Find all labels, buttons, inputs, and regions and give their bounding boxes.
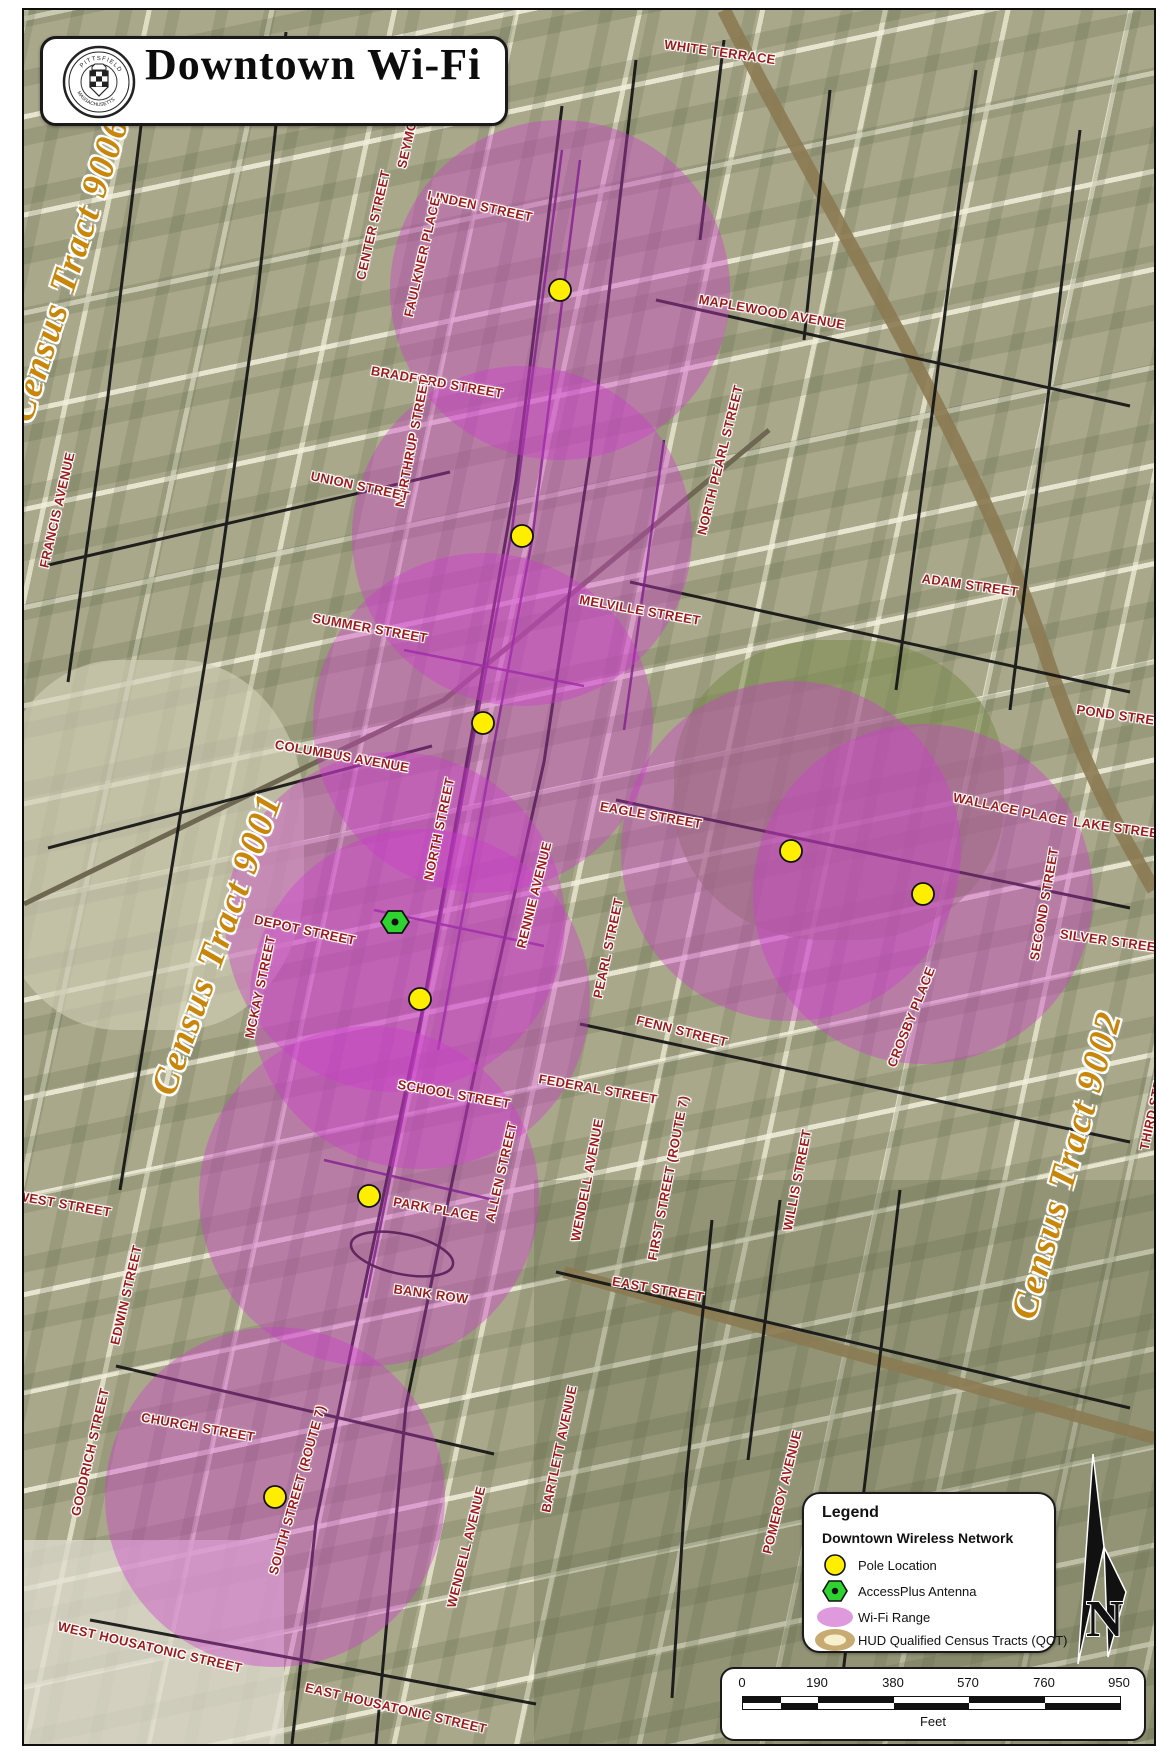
street-label-linden-street: LINDEN STREET [426, 188, 534, 225]
street-label-wallace-place: WALLACE PLACE [952, 790, 1068, 829]
street-label-east-housatonic-street: EAST HOUSATONIC STREET [304, 1680, 489, 1736]
street-label-melville-street: MELVILLE STREET [578, 592, 701, 628]
street-label-edwin-street: EDWIN STREET [107, 1244, 145, 1347]
census-tract-label-census-tract-9006: Census Tract 9006 [22, 111, 139, 427]
legend-item-label: HUD Qualified Census Tracts (QCT) [858, 1633, 1068, 1648]
hud-qct-swatch-icon [812, 1627, 858, 1653]
page-title: Downtown Wi-Fi [145, 39, 481, 90]
pittsfield-city-seal-icon: PITTSFIELD MASSACHUSETTS [61, 44, 137, 120]
legend-item-label: AccessPlus Antenna [858, 1584, 977, 1599]
street-label-adam-street: ADAM STREET [921, 571, 1019, 599]
street-label-church-street: CHURCH STREET [140, 1410, 256, 1445]
scale-tick: 380 [882, 1675, 904, 1690]
census-tract-label-census-tract-9002: Census Tract 9002 [1002, 1006, 1131, 1324]
street-label-goodrich-street: GOODRICH STREET [68, 1387, 112, 1518]
street-label-south-street-route-7: SOUTH STREET (ROUTE 7) [266, 1404, 329, 1577]
scale-tick: 570 [957, 1675, 979, 1690]
scale-tick: 0 [738, 1675, 745, 1690]
street-label-east-street: EAST STREET [611, 1274, 705, 1305]
street-label-bank-row: BANK ROW [393, 1281, 470, 1306]
street-label-fenn-street: FENN STREET [635, 1012, 729, 1049]
legend-subheader: Downtown Wireless Network [822, 1530, 1013, 1546]
street-label-school-street: SCHOOL STREET [396, 1077, 511, 1112]
legend-item-accessplus-antenna: AccessPlus Antenna [812, 1578, 977, 1604]
street-label-white-terrace: WHITE TERRACE [663, 37, 776, 67]
street-label-mckay-street: MCKAY STREET [242, 934, 278, 1040]
street-label-lake-street: LAKE STREET [1073, 814, 1156, 842]
legend-item-pole-location: Pole Location [812, 1552, 937, 1578]
street-label-west-housatonic-street: WEST HOUSATONIC STREET [56, 1618, 243, 1675]
street-label-columbus-avenue: COLUMBUS AVENUE [274, 737, 410, 775]
map-canvas: WHITE TERRACESEYMOURLINDEN STREETCENTER … [22, 8, 1156, 1746]
legend-item-label: Wi-Fi Range [858, 1610, 930, 1625]
street-label-federal-street: FEDERAL STREET [537, 1071, 658, 1107]
pole-location-swatch-icon [812, 1552, 858, 1578]
street-label-willis-street: WILLIS STREET [780, 1128, 814, 1232]
antenna-swatch-icon [812, 1578, 858, 1604]
street-label-north-street: NORTH STREET [421, 776, 457, 882]
street-label-rennie-avenue: RENNIE AVENUE [513, 840, 554, 950]
legend-item-hud-qct: HUD Qualified Census Tracts (QCT) [812, 1627, 1068, 1653]
street-label-crosby-place: CROSBY PLACE [884, 965, 938, 1070]
street-label-maplewood-avenue: MAPLEWOOD AVENUE [698, 292, 847, 333]
scale-bar-graphic [742, 1696, 1121, 1710]
north-label: N [1086, 1591, 1124, 1648]
street-label-north-pearl-street: NORTH PEARL STREET [694, 383, 746, 536]
street-label-wendell-avenue: WENDELL AVENUE [568, 1117, 606, 1242]
scale-unit-label: Feet [722, 1714, 1144, 1729]
wifi-range-swatch-icon [812, 1605, 858, 1629]
street-label-pomeroy-avenue: POMEROY AVENUE [759, 1429, 804, 1556]
street-label-faulkner-place: FAULKNER PLACE [401, 196, 443, 319]
street-label-allen-street: ALLEN STREET [482, 1121, 520, 1224]
legend-header: Legend [822, 1504, 879, 1522]
map-title-box: PITTSFIELD MASSACHUSETTS Downtown Wi-Fi [40, 36, 508, 126]
street-label-bartlett-avenue: BARTLETT AVENUE [538, 1384, 580, 1514]
street-label-union-street: UNION STREET [309, 468, 410, 504]
street-label-pearl-street: PEARL STREET [590, 896, 626, 999]
street-label-francis-avenue: FRANCIS AVENUE [36, 451, 77, 570]
street-label-second-street: SECOND STREET [1027, 846, 1062, 961]
scale-tick: 190 [806, 1675, 828, 1690]
street-label-west-street: WEST STREET [22, 1188, 112, 1219]
street-label-silver-street: SILVER STREET [1059, 926, 1156, 955]
street-label-third-street: THIRD STREET [1136, 1052, 1156, 1151]
street-label-park-place: PARK PLACE [392, 1194, 480, 1224]
north-arrow-icon: N [1044, 1440, 1154, 1690]
street-label-center-street: CENTER STREET [353, 169, 393, 282]
street-label-wendell-avenue: WENDELL AVENUE [444, 1485, 489, 1610]
legend: Legend Downtown Wireless Network Pole Lo… [802, 1492, 1056, 1653]
legend-item-label: Pole Location [858, 1558, 937, 1573]
map-labels-layer: WHITE TERRACESEYMOURLINDEN STREETCENTER … [24, 10, 1154, 1744]
street-label-summer-street: SUMMER STREET [311, 610, 428, 645]
street-label-bradford-street: BRADFORD STREET [370, 363, 504, 401]
street-label-pond-street: POND STREET [1076, 702, 1156, 730]
street-label-first-street-route-7: FIRST STREET (ROUTE 7) [645, 1094, 692, 1261]
map-page: WHITE TERRACESEYMOURLINDEN STREETCENTER … [0, 0, 1175, 1762]
street-label-eagle-street: EAGLE STREET [599, 799, 703, 832]
